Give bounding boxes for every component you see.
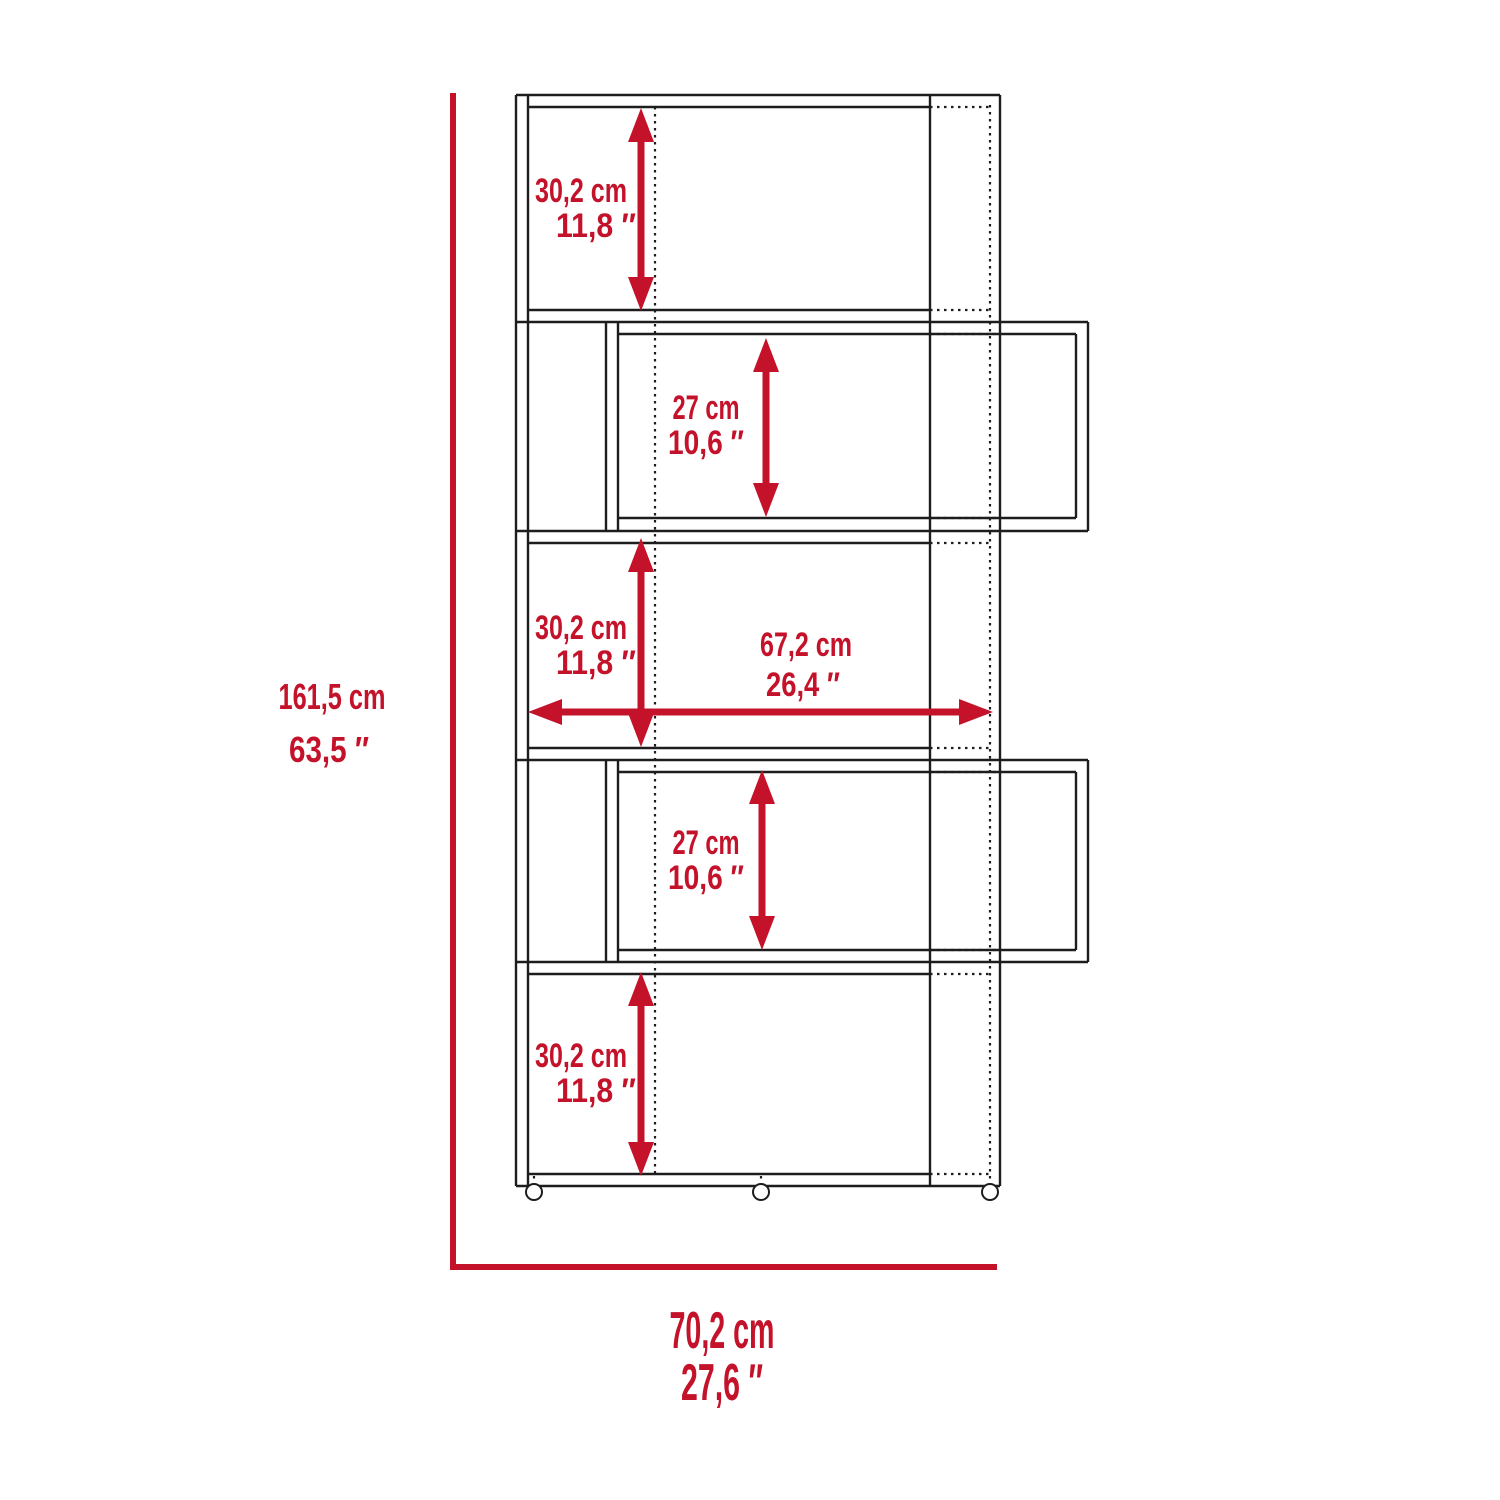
shelf-4-height-arrow	[749, 770, 775, 950]
shelf-4-inch-label: 10,6 ″	[668, 859, 744, 897]
shelf-3-inch-label: 11,8 ″	[556, 644, 636, 682]
overall-width-inch-label: 27,6 ″	[681, 1354, 763, 1412]
shelf-3-height-arrow	[628, 538, 654, 747]
overall-height-inch-label: 63,5 ″	[289, 729, 369, 770]
dimension-axis	[450, 93, 997, 1270]
shelf-2-cm-label: 27 cm	[673, 389, 740, 427]
shelf-2-inch-label: 10,6 ″	[668, 424, 744, 462]
shelf-2-height-arrow	[753, 338, 779, 517]
shelf-5-inch-label: 11,8 ″	[556, 1072, 636, 1110]
shelf-width-cm-label: 67,2 cm	[760, 626, 852, 664]
foot-right	[982, 1184, 998, 1200]
shelf-3-cm-label: 30,2 cm	[535, 609, 627, 647]
overall-width-cm-label: 70,2 cm	[670, 1302, 775, 1360]
shelf-5-cm-label: 30,2 cm	[535, 1037, 627, 1075]
shelf-4-cm-label: 27 cm	[673, 824, 740, 862]
shelf-1-cm-label: 30,2 cm	[535, 172, 627, 210]
axis-l-line	[450, 93, 997, 1270]
bookcase-dimension-drawing: 30,2 cm 11,8 ″ 27 cm 10,6 ″ 30,2 cm 11,8…	[0, 0, 1500, 1500]
overall-height-cm-label: 161,5 cm	[279, 676, 386, 717]
foot-left	[526, 1184, 542, 1200]
shelf-width-inch-label: 26,4 ″	[766, 666, 840, 704]
shelf-1-inch-label: 11,8 ″	[556, 207, 636, 245]
shelf-width-arrow	[528, 699, 993, 725]
foot-center	[753, 1184, 769, 1200]
dimension-diagram: 30,2 cm 11,8 ″ 27 cm 10,6 ″ 30,2 cm 11,8…	[0, 0, 1500, 1500]
